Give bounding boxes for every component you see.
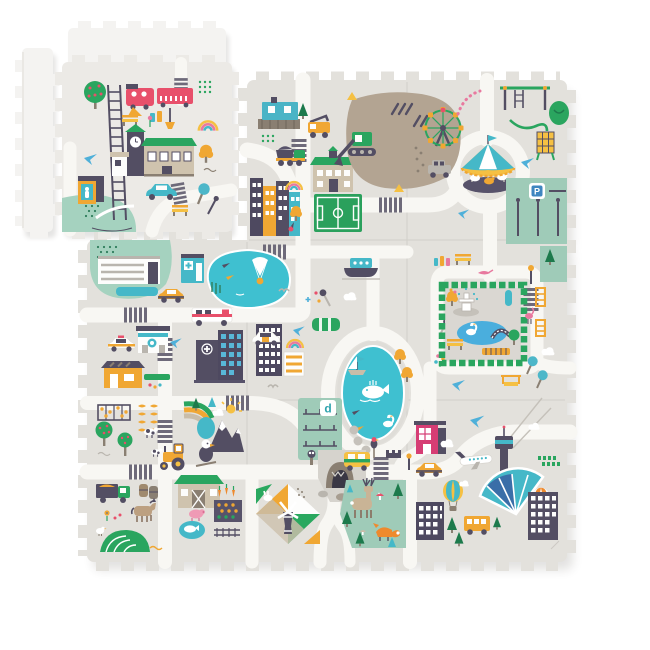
clock-tower (125, 124, 146, 176)
station-annex (110, 152, 129, 176)
forest-block (340, 478, 406, 548)
product-photo: P (0, 0, 650, 650)
station-hall (141, 138, 197, 177)
pharmacy-kiosk (181, 254, 204, 283)
soccer-field (314, 194, 362, 232)
play-mat-scene: P (0, 0, 650, 650)
pond-with-parachute (208, 250, 290, 308)
sage-blocks (540, 246, 567, 282)
plain-foam-strip-piece (20, 48, 56, 235)
whale-puddle (179, 521, 205, 539)
district-letter: d (324, 402, 331, 416)
parking-lot: P (506, 178, 567, 244)
fort-icon (386, 450, 401, 458)
plaza-pool (116, 287, 158, 296)
train-station-tile (60, 60, 235, 235)
district-sign: d (320, 400, 336, 416)
hedge-park (442, 285, 524, 363)
rock-icon (318, 491, 328, 498)
hedge-icon (144, 374, 170, 380)
parking-sign: P (529, 183, 545, 199)
cypress-icon (505, 290, 512, 306)
phone-booth (78, 176, 104, 204)
parking-letter: P (534, 187, 540, 197)
dotted-square (199, 81, 211, 93)
city-building (528, 492, 558, 540)
optician-shop (136, 326, 170, 353)
mall-building (98, 256, 160, 284)
city-building (416, 502, 444, 540)
top-view-car (312, 318, 340, 331)
glacier-pond (197, 417, 215, 439)
